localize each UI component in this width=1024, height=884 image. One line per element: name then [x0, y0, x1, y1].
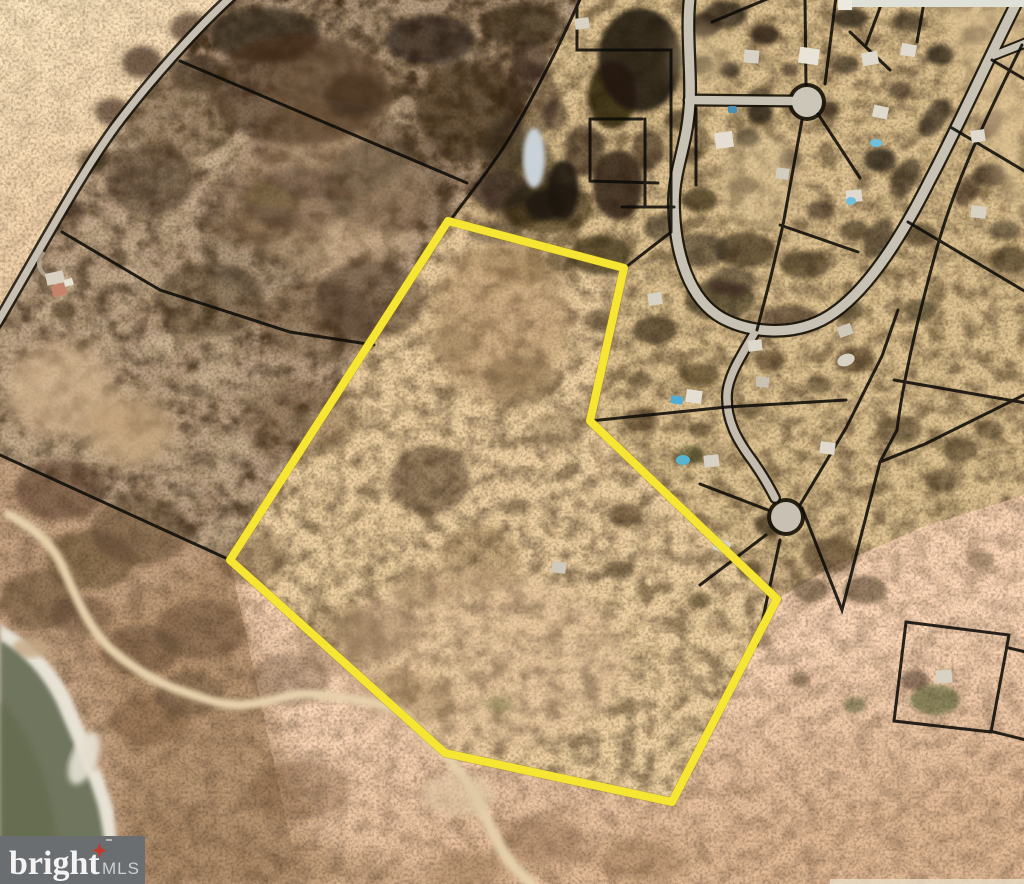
svg-text:bright: bright — [9, 845, 100, 882]
svg-text:MLS: MLS — [102, 859, 140, 878]
